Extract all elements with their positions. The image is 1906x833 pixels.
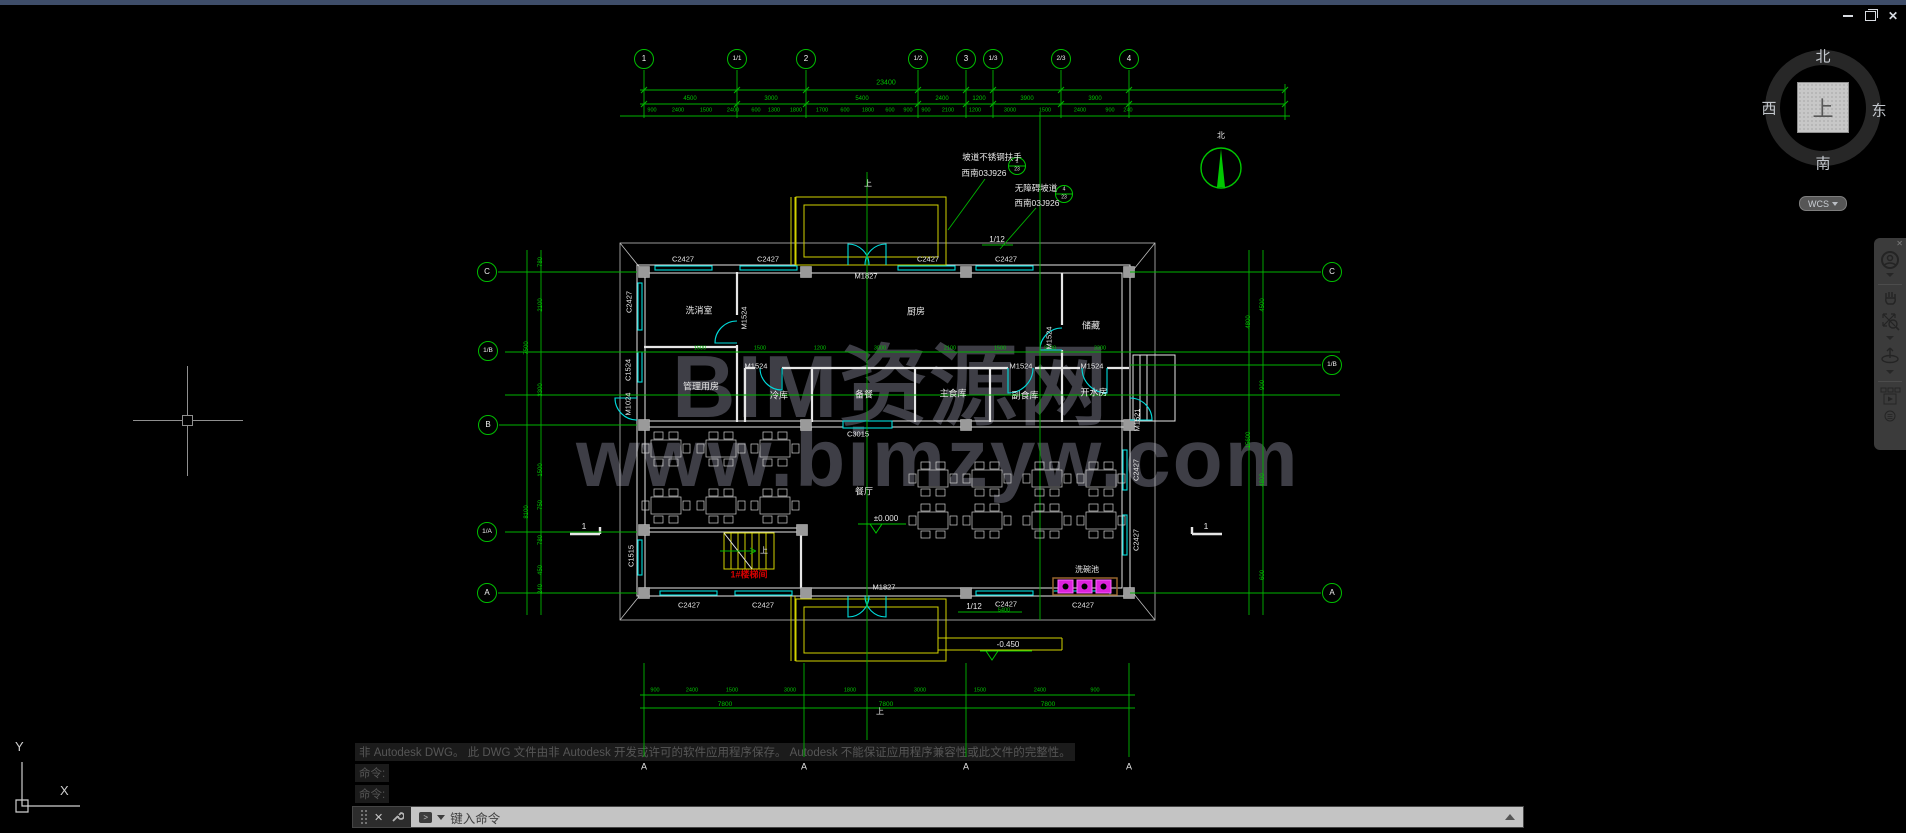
command-bar: ✕ > 键入命令 [352,806,1524,828]
viewcube[interactable]: 北 南 西 东 上 [1763,44,1891,212]
wcs-label: WCS [1808,199,1829,209]
pan-icon[interactable] [1881,289,1899,307]
recent-commands-icon[interactable] [437,815,445,820]
viewcube-north[interactable]: 北 [1815,46,1830,67]
viewcube-up-label: 上 [1813,93,1834,123]
application-window: ✕ BIM资源网 www.bimzyw.com 非 Autodesk DWG。 … [0,0,1906,833]
window-controls: ✕ [1843,9,1898,23]
navbar-customize-icon[interactable] [1884,410,1896,422]
chevron-down-icon [1832,202,1838,206]
close-icon[interactable]: ✕ [1888,9,1898,23]
zoom-icon[interactable] [1880,311,1900,333]
drag-grip-icon[interactable] [360,809,367,825]
command-input[interactable]: > 键入命令 [411,807,1523,827]
viewcube-top-face[interactable]: 上 [1797,82,1849,133]
divider [1878,284,1902,285]
wrench-icon[interactable] [390,810,404,824]
navbar-close-icon[interactable]: ✕ [1896,239,1903,248]
ucs-y-label: Y [15,739,24,754]
command-placeholder: 键入命令 [450,808,500,827]
pickbox [182,415,193,426]
cad-drawing-linework [0,0,1906,833]
navigation-wheel-menu-icon[interactable] [1886,273,1894,277]
zoom-menu-icon[interactable] [1886,336,1894,340]
expand-history-icon[interactable] [1505,814,1515,820]
ucs-icon: Y X [0,733,110,833]
restore-icon[interactable] [1865,11,1876,21]
viewcube-west[interactable]: 西 [1761,98,1776,119]
navigation-wheel-icon[interactable] [1880,250,1900,270]
wcs-dropdown[interactable]: WCS [1799,196,1847,211]
orbit-icon[interactable] [1880,345,1900,367]
viewcube-east[interactable]: 东 [1871,100,1886,121]
command-prompt-icon[interactable]: > [419,812,432,823]
command-bar-handle: ✕ [353,807,411,827]
title-bar [0,0,1906,5]
navigation-bar: ✕ [1874,238,1906,450]
orbit-menu-icon[interactable] [1886,370,1894,374]
minimize-icon[interactable] [1843,15,1853,17]
divider [1878,381,1902,382]
command-close-icon[interactable]: ✕ [374,811,383,824]
viewcube-south[interactable]: 南 [1815,153,1830,174]
show-motion-icon[interactable] [1879,386,1901,406]
ucs-x-label: X [60,783,69,798]
